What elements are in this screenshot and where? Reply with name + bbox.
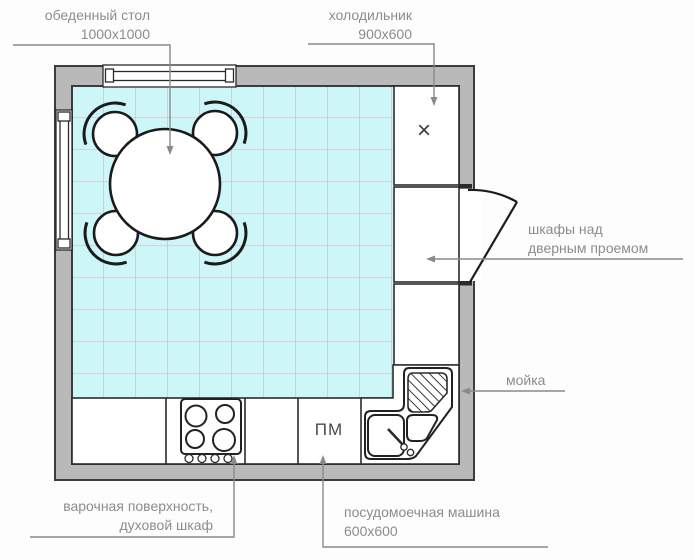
kitchen-floor-plan: обеденный стол 1000x1000 холодильник 900… <box>0 0 695 560</box>
label-sink-name: мойка <box>506 371 545 390</box>
window-left <box>56 110 72 250</box>
label-dining-table-name: обеденный стол <box>45 6 150 25</box>
burner <box>216 405 234 423</box>
label-fridge: холодильник 900x600 <box>329 6 412 44</box>
sink-bowl-left <box>368 415 404 456</box>
burner <box>186 406 207 427</box>
door-opening <box>459 184 482 286</box>
burner <box>213 429 235 451</box>
fridge-mark: × <box>413 117 435 145</box>
label-fridge-name: холодильник <box>329 6 412 25</box>
dishwasher-mark: ПМ <box>300 420 358 440</box>
side-cabinet <box>394 284 459 365</box>
label-door-cabinets: шкафы над дверным проемом <box>528 220 648 258</box>
label-dishwasher: посудомоечная машина 600x600 <box>344 503 500 541</box>
label-dishwasher-name: посудомоечная машина <box>344 503 500 522</box>
burner <box>186 430 204 448</box>
label-cooktop-line2: духовой шкаф <box>63 516 213 535</box>
label-door-cabinets-line1: шкафы над <box>528 220 648 239</box>
cabinet-over-door <box>394 187 459 282</box>
label-dining-table: обеденный стол 1000x1000 <box>45 6 150 44</box>
label-dishwasher-size: 600x600 <box>344 522 500 541</box>
label-dining-table-size: 1000x1000 <box>45 25 150 44</box>
knob <box>211 455 219 463</box>
label-sink: мойка <box>506 371 545 390</box>
knob <box>198 455 206 463</box>
door-jamb-top <box>459 184 472 189</box>
label-fridge-size: 900x600 <box>329 25 412 44</box>
floor-plan-drawing <box>0 0 695 560</box>
label-door-cabinets-line2: дверным проемом <box>528 239 648 258</box>
knob <box>224 455 232 463</box>
label-cooktop-line1: варочная поверхность, <box>63 497 213 516</box>
label-cooktop: варочная поверхность, духовой шкаф <box>63 497 213 535</box>
knob <box>185 455 193 463</box>
cooktop <box>181 399 241 463</box>
dining-table <box>110 129 220 239</box>
